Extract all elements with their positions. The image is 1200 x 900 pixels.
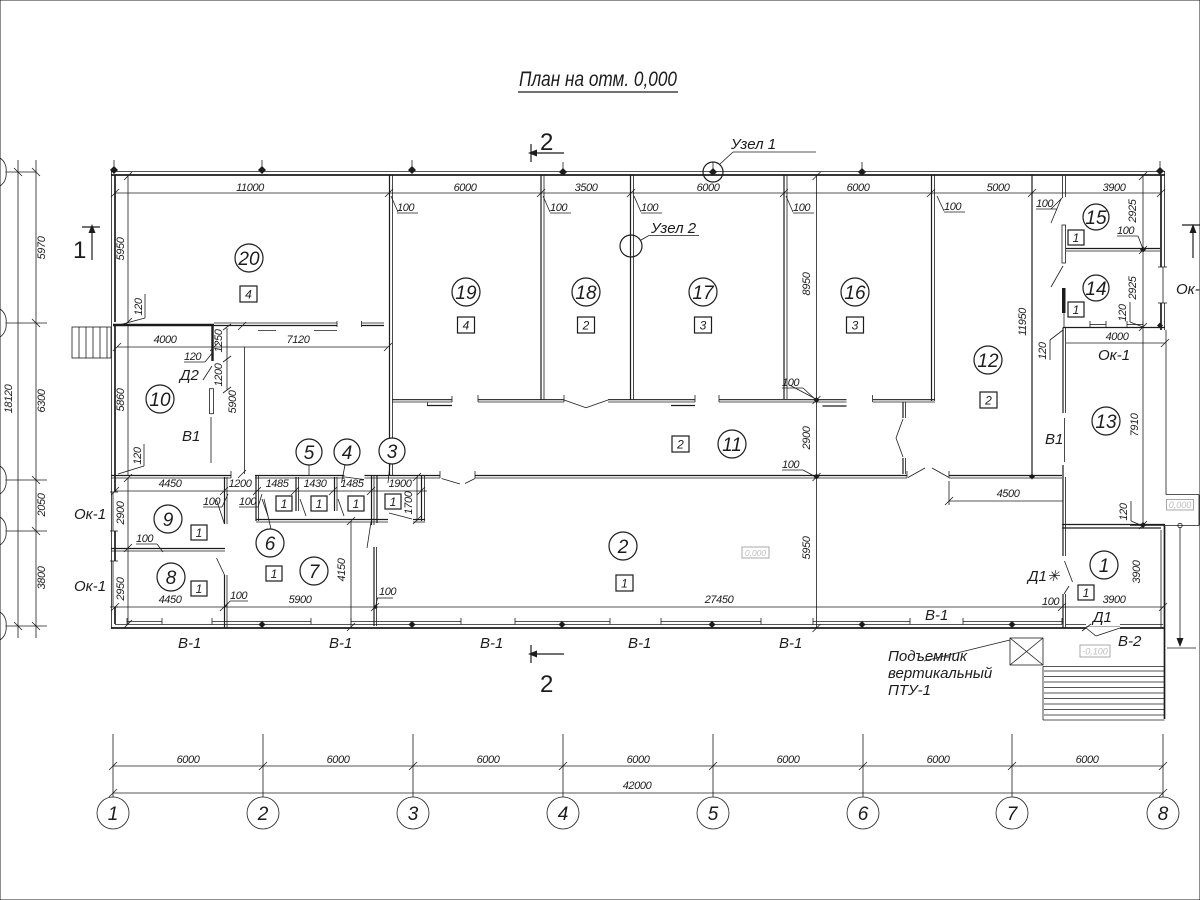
svg-text:1900: 1900 (389, 478, 413, 490)
svg-text:120: 120 (133, 297, 145, 315)
svg-text:Ок-1: Ок-1 (74, 506, 106, 523)
svg-text:10: 10 (149, 390, 171, 411)
svg-text:6: 6 (858, 804, 869, 825)
svg-text:ПТУ-1: ПТУ-1 (888, 682, 931, 699)
svg-text:100: 100 (782, 459, 800, 471)
svg-text:2: 2 (257, 804, 269, 825)
svg-text:Д1✳: Д1✳ (1026, 568, 1061, 585)
svg-text:6000: 6000 (327, 754, 351, 766)
svg-text:12: 12 (977, 351, 999, 372)
svg-text:8: 8 (166, 568, 177, 589)
svg-text:1: 1 (271, 567, 278, 581)
svg-text:2: 2 (984, 394, 992, 408)
svg-text:15: 15 (1085, 208, 1107, 229)
svg-text:4000: 4000 (154, 334, 178, 346)
svg-text:6000: 6000 (777, 754, 801, 766)
svg-text:4500: 4500 (997, 488, 1021, 500)
svg-text:100: 100 (230, 590, 248, 602)
svg-text:4450: 4450 (159, 478, 183, 490)
svg-text:1: 1 (1073, 303, 1080, 317)
svg-text:6000: 6000 (177, 754, 201, 766)
svg-text:100: 100 (793, 202, 811, 214)
svg-text:В-2: В-2 (1118, 633, 1142, 650)
svg-text:0,000: 0,000 (745, 548, 767, 558)
svg-text:100: 100 (136, 533, 154, 545)
svg-text:В-1: В-1 (925, 607, 948, 624)
svg-text:42000: 42000 (623, 780, 653, 792)
svg-text:7910: 7910 (1129, 412, 1141, 436)
svg-text:1485: 1485 (266, 478, 290, 490)
svg-text:100: 100 (944, 201, 962, 213)
svg-text:Д2: Д2 (178, 367, 200, 384)
svg-text:5: 5 (304, 443, 315, 464)
svg-text:2950: 2950 (115, 576, 127, 601)
svg-text:1: 1 (390, 495, 397, 509)
svg-text:5970: 5970 (36, 235, 48, 259)
svg-text:5950: 5950 (801, 535, 813, 559)
svg-text:2050: 2050 (36, 492, 48, 517)
svg-text:В1: В1 (182, 428, 200, 445)
svg-text:В-1: В-1 (480, 635, 503, 652)
svg-text:11: 11 (722, 435, 742, 456)
svg-text:6000: 6000 (697, 182, 721, 194)
svg-text:2900: 2900 (801, 425, 813, 450)
svg-text:100: 100 (203, 496, 221, 508)
svg-text:18: 18 (575, 283, 597, 304)
svg-text:7: 7 (1007, 804, 1019, 825)
svg-text:17: 17 (692, 283, 715, 304)
svg-text:1: 1 (196, 526, 203, 540)
svg-text:19: 19 (455, 283, 477, 304)
svg-text:120: 120 (1037, 341, 1049, 359)
svg-text:0,000: 0,000 (1169, 500, 1192, 510)
svg-text:Подъемник: Подъемник (888, 648, 968, 665)
svg-text:1: 1 (1073, 231, 1080, 245)
svg-text:4: 4 (558, 804, 569, 825)
svg-text:1: 1 (1099, 556, 1110, 577)
svg-text:120: 120 (1117, 303, 1129, 321)
svg-text:1485: 1485 (341, 478, 365, 490)
svg-text:18120: 18120 (3, 383, 15, 413)
svg-text:4: 4 (245, 288, 252, 302)
svg-text:3900: 3900 (1131, 559, 1143, 583)
svg-text:5860: 5860 (115, 387, 127, 411)
svg-text:В-1: В-1 (329, 635, 352, 652)
svg-text:6000: 6000 (454, 182, 478, 194)
svg-text:3800: 3800 (36, 565, 48, 589)
svg-text:6000: 6000 (477, 754, 501, 766)
svg-text:5900: 5900 (289, 594, 313, 606)
svg-text:20: 20 (237, 249, 260, 270)
svg-text:100: 100 (1042, 596, 1060, 608)
svg-text:В-1: В-1 (628, 635, 651, 652)
svg-text:1430: 1430 (304, 478, 328, 490)
svg-text:100: 100 (397, 202, 415, 214)
svg-text:4: 4 (342, 443, 353, 464)
svg-text:6000: 6000 (847, 182, 871, 194)
svg-text:6000: 6000 (927, 754, 951, 766)
svg-text:2: 2 (540, 129, 553, 156)
svg-text:вертикальный: вертикальный (888, 665, 993, 682)
svg-text:2: 2 (676, 438, 684, 452)
svg-text:Узел 2: Узел 2 (650, 220, 697, 237)
svg-text:6000: 6000 (627, 754, 651, 766)
svg-text:120: 120 (1118, 502, 1130, 520)
svg-text:3500: 3500 (575, 182, 599, 194)
svg-text:100: 100 (641, 202, 659, 214)
svg-text:5: 5 (708, 804, 719, 825)
svg-text:4000: 4000 (1106, 331, 1130, 343)
svg-text:120: 120 (132, 446, 144, 464)
svg-text:6000: 6000 (1076, 754, 1100, 766)
svg-text:1: 1 (196, 582, 203, 596)
svg-text:1: 1 (353, 497, 360, 511)
svg-text:3: 3 (408, 804, 419, 825)
svg-text:27450: 27450 (704, 594, 735, 606)
svg-text:2925: 2925 (1127, 198, 1139, 223)
svg-text:7120: 7120 (287, 334, 311, 346)
svg-text:5900: 5900 (227, 389, 239, 413)
svg-text:1: 1 (281, 497, 288, 511)
svg-text:2: 2 (582, 319, 590, 333)
svg-text:Ок-1: Ок-1 (1176, 281, 1200, 298)
svg-text:2925: 2925 (1127, 275, 1139, 300)
svg-text:8950: 8950 (801, 271, 813, 295)
svg-text:16: 16 (844, 283, 866, 304)
svg-text:5000: 5000 (987, 182, 1011, 194)
svg-text:11950: 11950 (1017, 307, 1029, 336)
svg-text:5950: 5950 (115, 236, 127, 260)
svg-text:11000: 11000 (236, 182, 265, 194)
svg-text:План на отм. 0,000: План на отм. 0,000 (519, 68, 677, 91)
svg-text:4450: 4450 (159, 594, 183, 606)
svg-text:3900: 3900 (1103, 594, 1127, 606)
svg-text:4: 4 (463, 319, 470, 333)
svg-text:2900: 2900 (115, 500, 127, 525)
svg-text:3: 3 (852, 319, 859, 333)
svg-text:3: 3 (700, 319, 707, 333)
svg-text:1: 1 (1083, 586, 1090, 600)
svg-text:120: 120 (184, 351, 202, 363)
svg-text:8: 8 (1158, 804, 1169, 825)
svg-text:1: 1 (621, 577, 628, 591)
svg-text:100: 100 (550, 202, 568, 214)
svg-text:9: 9 (163, 510, 174, 531)
svg-text:Ок-1: Ок-1 (1098, 347, 1130, 364)
svg-text:14: 14 (1085, 279, 1106, 300)
svg-text:1700: 1700 (403, 490, 415, 514)
svg-text:1: 1 (73, 237, 86, 264)
svg-text:13: 13 (1095, 412, 1117, 433)
svg-text:В-1: В-1 (178, 635, 201, 652)
svg-text:3: 3 (387, 442, 398, 463)
svg-text:Ок-1: Ок-1 (74, 578, 106, 595)
svg-text:3900: 3900 (1103, 182, 1127, 194)
svg-text:Узел 1: Узел 1 (730, 136, 776, 153)
svg-text:100: 100 (239, 496, 257, 508)
svg-text:1200: 1200 (213, 362, 225, 386)
svg-text:100: 100 (1117, 225, 1135, 237)
svg-text:1: 1 (108, 804, 119, 825)
svg-text:-0,100: -0,100 (1082, 647, 1108, 657)
svg-text:1: 1 (316, 497, 323, 511)
svg-text:1250: 1250 (213, 328, 225, 352)
svg-text:6300: 6300 (36, 388, 48, 412)
svg-text:4150: 4150 (336, 557, 348, 581)
svg-text:2: 2 (540, 671, 553, 698)
svg-text:Д1: Д1 (1091, 609, 1112, 626)
svg-text:7: 7 (309, 562, 321, 583)
svg-text:2: 2 (617, 537, 629, 558)
svg-text:В-1: В-1 (779, 635, 802, 652)
svg-text:100: 100 (782, 377, 800, 389)
svg-text:1200: 1200 (229, 478, 253, 490)
svg-text:В1: В1 (1045, 431, 1063, 448)
svg-text:6: 6 (265, 534, 276, 555)
svg-text:100: 100 (379, 586, 397, 598)
